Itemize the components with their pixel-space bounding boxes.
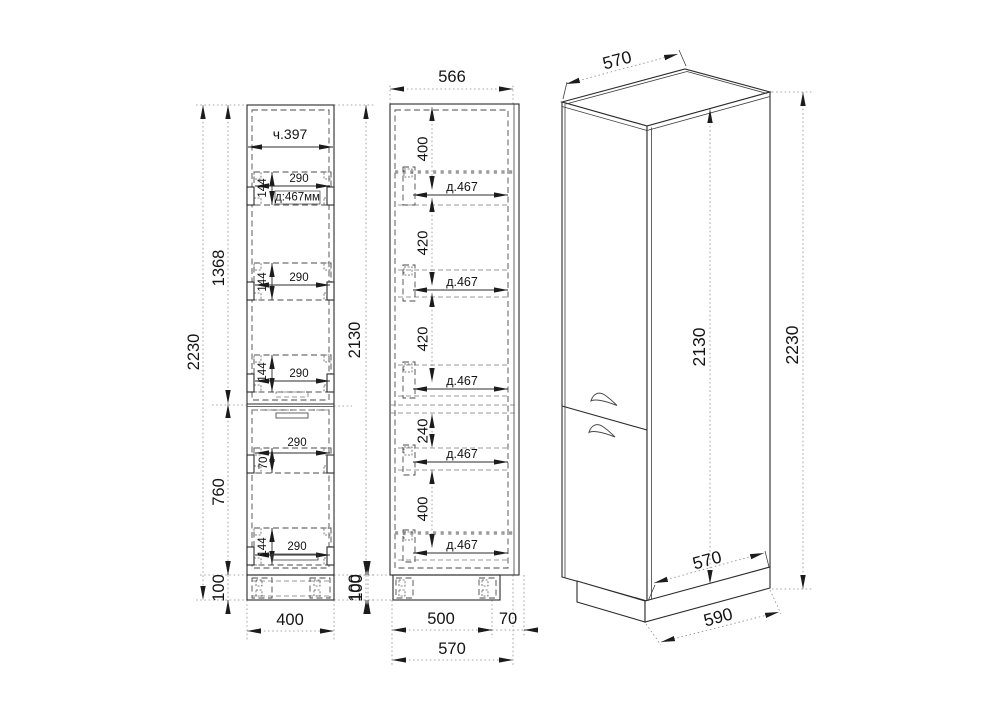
dim-iso-total-height: 2230 <box>782 325 802 364</box>
side-shelf-4: д.467 <box>398 445 508 475</box>
dim-drawer5-height: 144 <box>257 537 269 557</box>
dim-shelf2-depth: д.467 <box>446 275 478 289</box>
dim-drawer4-width: 290 <box>287 437 306 449</box>
front-drawer-1: 290 144 д:467мм <box>247 172 334 205</box>
side-shelf-5: д.467 <box>395 530 513 562</box>
dim-side-total-depth: 570 <box>438 640 466 658</box>
dim-front-total-height: 2230 <box>185 334 203 371</box>
front-view: ч.397 290 144 д:467мм 290 144 <box>185 105 374 640</box>
dim-gap-1: 400 <box>415 136 432 161</box>
dim-drawer1-height: 144 <box>257 178 269 198</box>
dim-gap-5: 400 <box>415 496 432 521</box>
side-shelf-1: д.467 <box>395 167 513 205</box>
drawing-page: ч.397 290 144 д:467мм 290 144 <box>0 0 1000 707</box>
side-shelf-3: д.467 <box>398 362 508 398</box>
dim-shelf5-depth: д.467 <box>446 538 478 552</box>
lower-door-handle <box>276 413 308 418</box>
dim-shelf3-depth: д.467 <box>446 374 478 388</box>
side-cabinet-outline <box>390 104 519 575</box>
dim-shelf4-depth: д.467 <box>446 447 478 461</box>
dim-iso-top-depth: 570 <box>600 46 634 73</box>
dim-drawer4-height: 70 <box>258 457 270 470</box>
dim-drawer2-height: 144 <box>257 272 269 292</box>
side-shelf-2: д.467 <box>398 265 508 301</box>
dim-gap-2: 420 <box>415 230 432 255</box>
dim-gap-3: 420 <box>415 326 432 351</box>
dim-drawer3-width: 290 <box>289 368 308 380</box>
dim-front-width: 400 <box>276 611 304 629</box>
drawing-canvas: ч.397 290 144 д:467мм 290 144 <box>0 0 1000 707</box>
dim-side-door-offset: 70 <box>499 610 517 628</box>
dim-drawer1-width: 290 <box>289 173 308 185</box>
front-drawer-2: 290 144 <box>247 263 334 300</box>
dim-front-lower-height: 760 <box>210 478 228 506</box>
dim-iso-body-height: 2130 <box>689 327 709 366</box>
dim-drawer5-width: 290 <box>287 541 306 553</box>
front-drawer-5: 290 144 <box>247 528 334 565</box>
dim-iso-base-depth: 590 <box>701 603 735 630</box>
upper-door-handle <box>276 392 308 397</box>
dim-side-top-depth: 566 <box>438 68 466 86</box>
side-view: 566 д.467 д.467 <box>348 68 537 666</box>
dim-shelf1-depth: д.467 <box>446 180 478 194</box>
front-legs <box>252 578 330 598</box>
dim-side-plinth: 100 <box>348 574 366 602</box>
iso-front-face <box>562 102 647 601</box>
dim-gap-4: 240 <box>415 418 432 443</box>
dim-front-inner-width: ч.397 <box>273 126 308 142</box>
dim-front-upper-height: 1368 <box>210 250 228 287</box>
side-legs <box>396 578 496 598</box>
dim-front-plinth-left: 100 <box>210 574 228 602</box>
iso-view: 570 2130 2230 570 590 <box>562 46 813 645</box>
dim-front-body-height: 2130 <box>346 322 364 359</box>
dim-drawer2-width: 290 <box>289 272 308 284</box>
front-drawer-4: 290 70 <box>247 437 334 473</box>
dim-drawer3-height: 144 <box>257 362 269 382</box>
dim-drawer1-depth: д:467мм <box>275 192 320 204</box>
dim-side-base-depth: 500 <box>427 610 455 628</box>
front-drawer-3: 290 144 <box>247 355 334 397</box>
